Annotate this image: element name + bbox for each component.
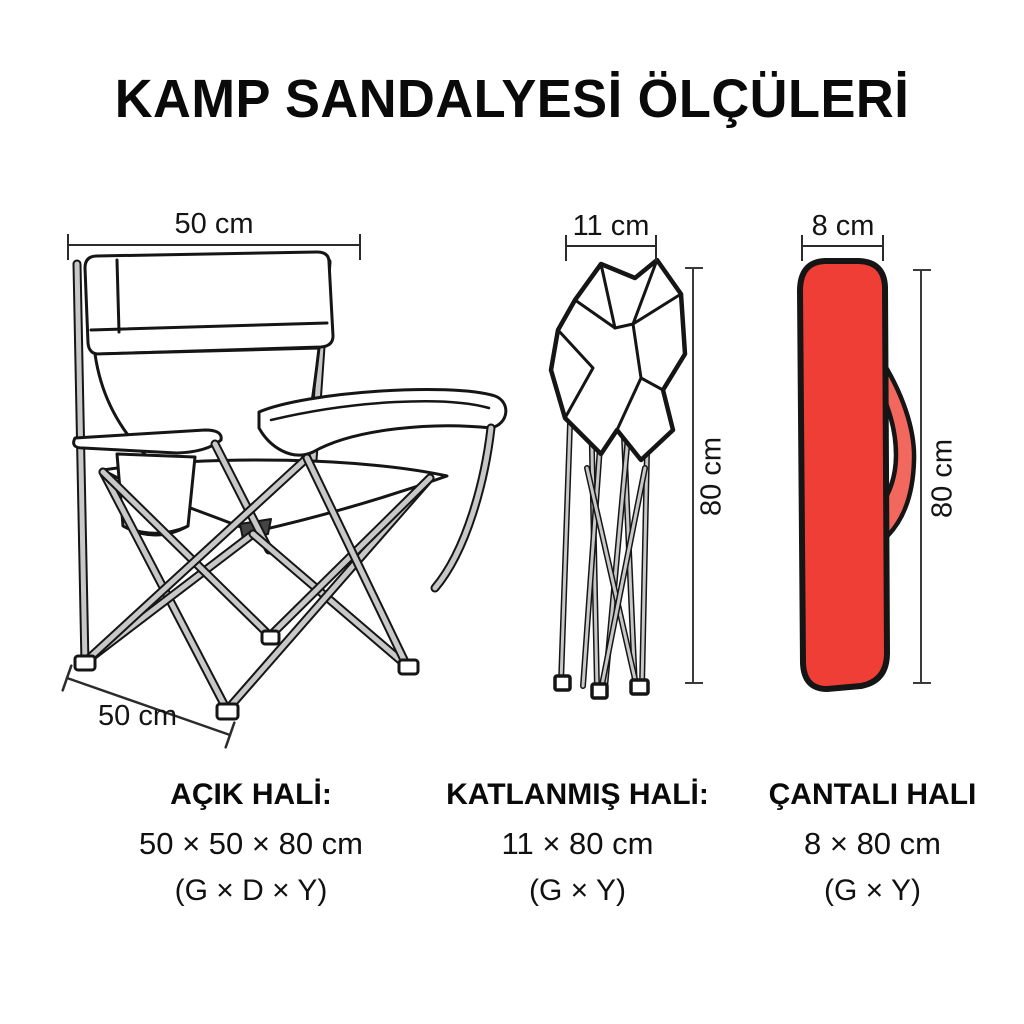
caption-bag: ÇANTALI HALI 8 × 80 cm (G × Y) (745, 778, 1000, 908)
caption-bag-size: 8 × 80 cm (745, 826, 1000, 862)
caption-folded-title: KATLANMIŞ HALİ: (420, 778, 735, 812)
caption-folded: KATLANMIŞ HALİ: 11 × 80 cm (G × Y) (420, 778, 735, 908)
diagram-canvas: KAMP SANDALYESİ ÖLÇÜLERİ (0, 0, 1024, 1024)
chair-width-dimension-line (68, 244, 360, 246)
folded-height-label: 80 cm (696, 427, 729, 527)
carry-bag-illustration (795, 255, 920, 703)
caption-folded-size: 11 × 80 cm (420, 826, 735, 862)
caption-bag-axes: (G × Y) (745, 874, 1000, 908)
page-title: KAMP SANDALYESİ ÖLÇÜLERİ (15, 68, 1008, 130)
bag-height-label: 80 cm (927, 429, 960, 529)
bag-height-dimension-line (920, 270, 922, 683)
folded-width-label: 11 cm (556, 210, 666, 243)
folded-width-dimension-line (566, 245, 656, 247)
caption-bag-title: ÇANTALI HALI (745, 778, 1000, 812)
caption-open-size: 50 × 50 × 80 cm (95, 826, 407, 862)
caption-folded-axes: (G × Y) (420, 874, 735, 908)
chair-width-label: 50 cm (68, 208, 360, 241)
caption-open: AÇIK HALİ: 50 × 50 × 80 cm (G × D × Y) (95, 778, 407, 908)
bag-width-label: 8 cm (792, 210, 894, 243)
folded-height-dimension-line (692, 268, 694, 683)
caption-open-title: AÇIK HALİ: (95, 778, 407, 812)
bag-width-dimension-line (802, 245, 883, 247)
chair-depth-label: 50 cm (80, 700, 195, 733)
caption-open-axes: (G × D × Y) (95, 874, 407, 908)
folded-chair-illustration (545, 258, 695, 703)
